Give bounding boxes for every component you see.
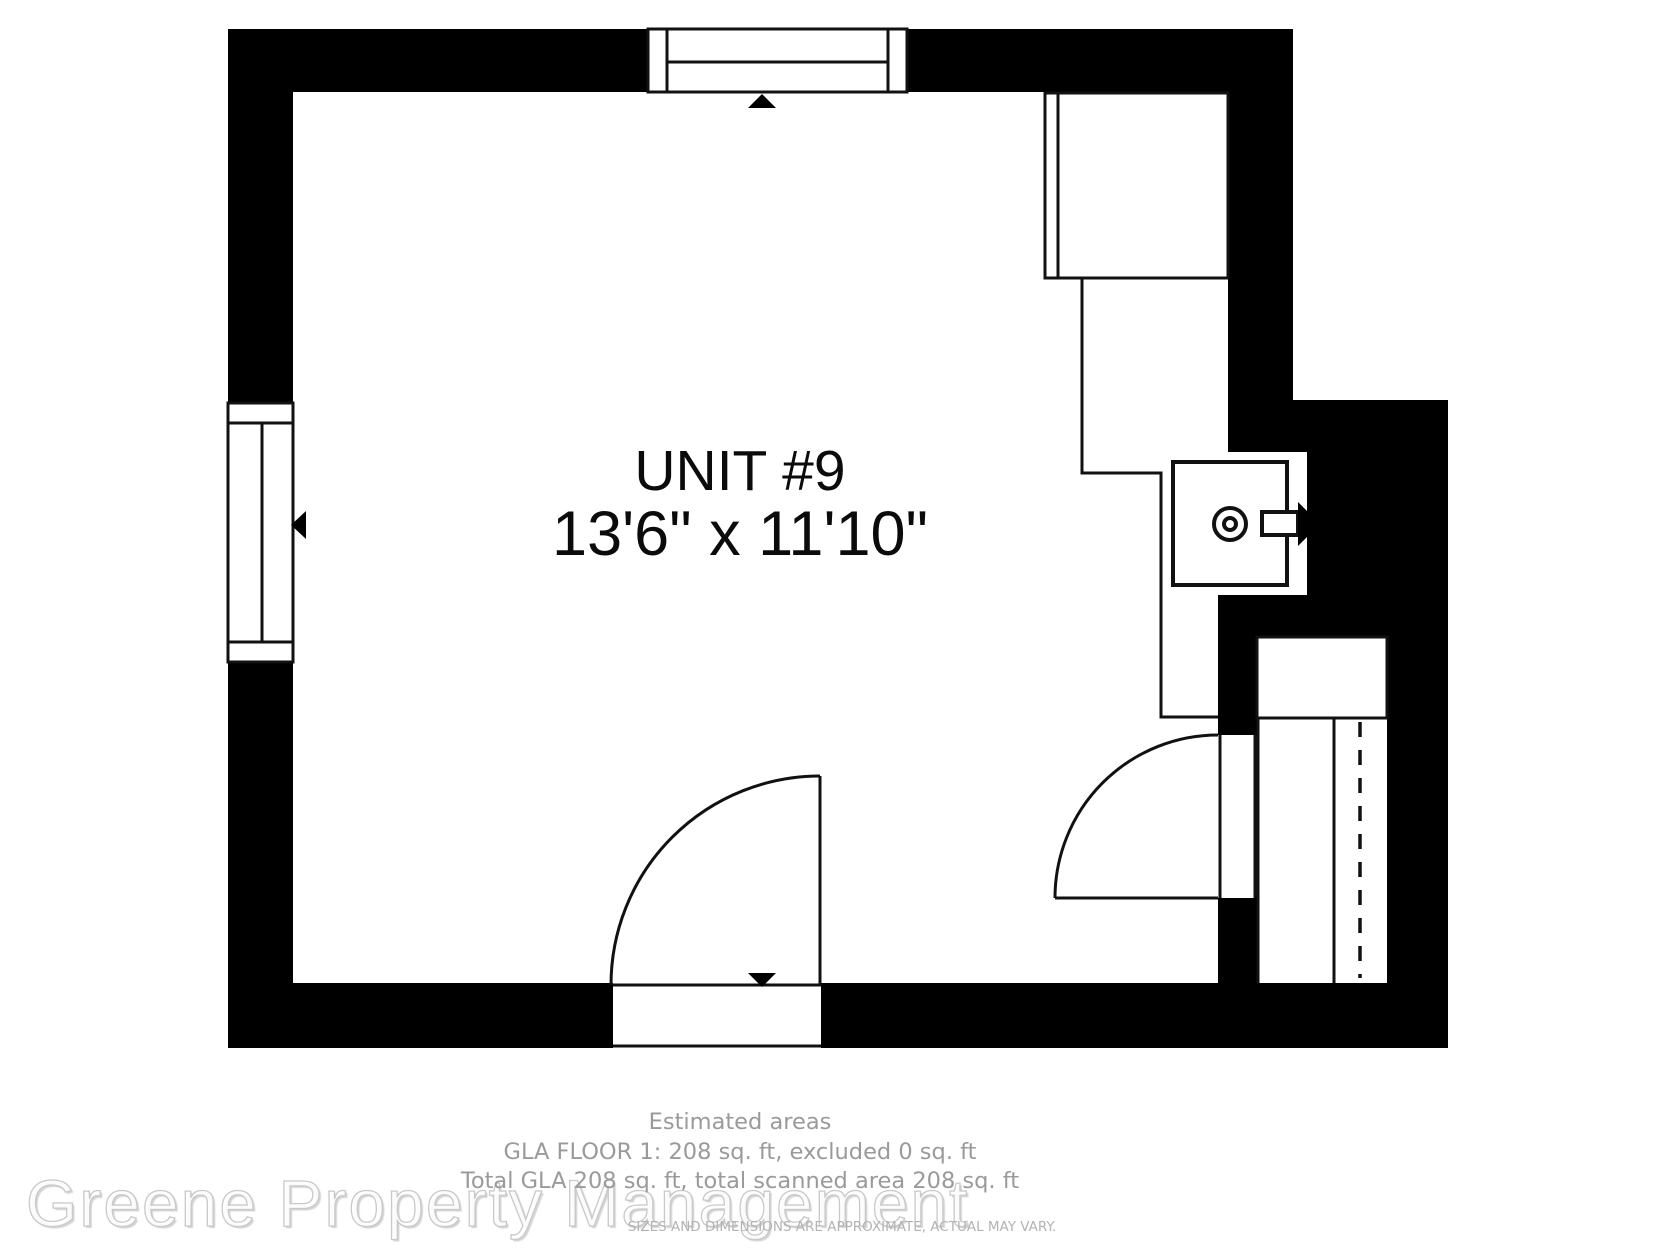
top-window-triangle bbox=[748, 94, 776, 108]
wardrobe-door-strip bbox=[1045, 93, 1058, 278]
floorplan-drawing bbox=[0, 0, 1680, 1260]
right-doorway-gap bbox=[1218, 735, 1257, 898]
interior-door-arc bbox=[1055, 735, 1218, 898]
wall-right-ext-top bbox=[1293, 400, 1448, 452]
water-heater-with-vent-arrow bbox=[1173, 462, 1320, 585]
wardrobe-cabinet bbox=[1045, 93, 1228, 278]
vent-arrow-shaft bbox=[1262, 512, 1298, 535]
top-window bbox=[648, 29, 907, 92]
wall-band-below-alcove bbox=[1218, 595, 1448, 637]
estimated-areas-title: Estimated areas bbox=[461, 1108, 1019, 1138]
wall-doorjamb-lower bbox=[1218, 898, 1257, 983]
interior-door-right bbox=[1055, 735, 1218, 898]
closet-with-hanging-rod bbox=[1257, 637, 1387, 983]
floorplan-page: Greene Property Management bbox=[0, 0, 1680, 1260]
wall-bottom bbox=[228, 983, 1448, 1048]
entry-door-arc bbox=[611, 776, 820, 985]
wardrobe-body bbox=[1058, 93, 1228, 278]
wall-right-upper bbox=[1228, 29, 1293, 452]
disclaimer-text: SIZES AND DIMENSIONS ARE APPROXIMATE, AC… bbox=[628, 1219, 1056, 1235]
wall-right-outer-strip bbox=[1387, 637, 1448, 983]
unit-dimensions-label: 13'6" x 11'10" bbox=[552, 498, 928, 570]
water-heater-ring-inner bbox=[1224, 518, 1236, 530]
total-gla-line: Total GLA 208 sq. ft, total scanned area… bbox=[461, 1167, 1019, 1197]
left-window bbox=[228, 403, 293, 662]
unit-label: UNIT #9 bbox=[634, 438, 845, 504]
entry-threshold-bottom bbox=[613, 983, 821, 1048]
gla-floor-line: GLA FLOOR 1: 208 sq. ft, excluded 0 sq. … bbox=[461, 1138, 1019, 1168]
wall-doorjamb-upper bbox=[1218, 637, 1257, 735]
estimated-areas-block: Estimated areas GLA FLOOR 1: 208 sq. ft,… bbox=[461, 1108, 1019, 1197]
entry-door-bottom bbox=[611, 776, 820, 985]
closet-shelf-box bbox=[1257, 637, 1387, 718]
